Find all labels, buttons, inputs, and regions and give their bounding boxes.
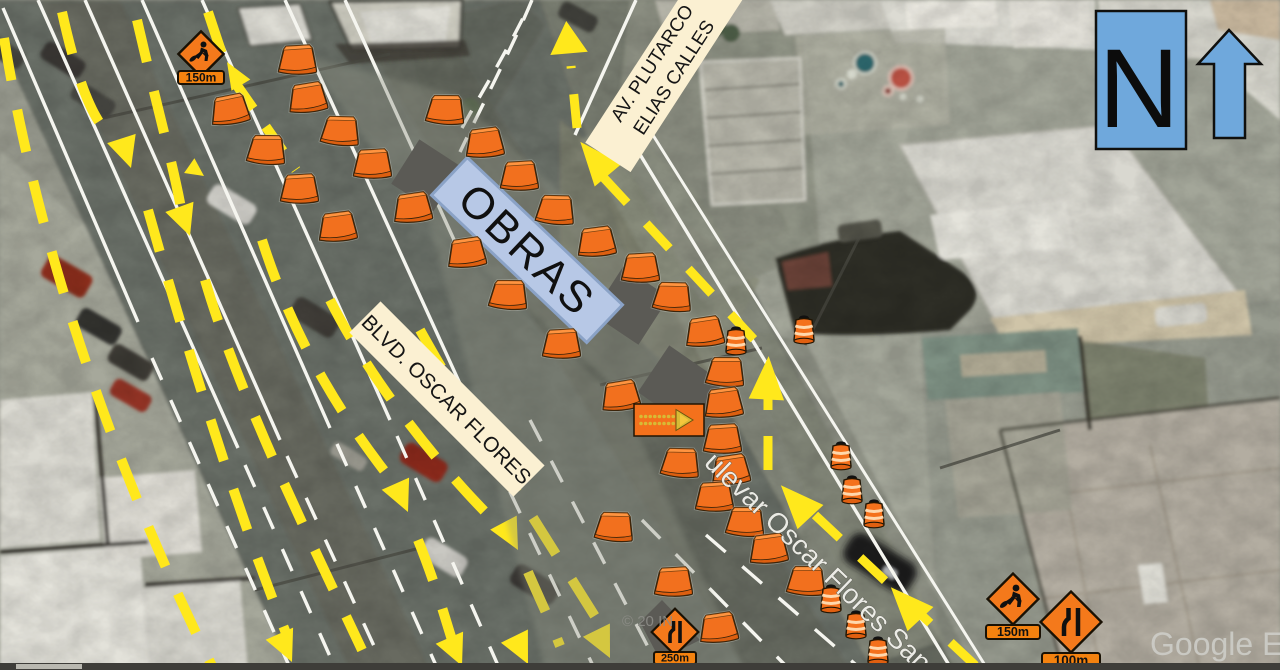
svg-text:N: N bbox=[1099, 26, 1180, 151]
svg-text:150m: 150m bbox=[997, 625, 1029, 639]
svg-text:© 20 IN: © 20 IN bbox=[622, 613, 673, 630]
svg-text:Google E: Google E bbox=[1150, 626, 1280, 662]
svg-text:250m: 250m bbox=[661, 653, 689, 665]
svg-text:150m: 150m bbox=[186, 71, 217, 85]
